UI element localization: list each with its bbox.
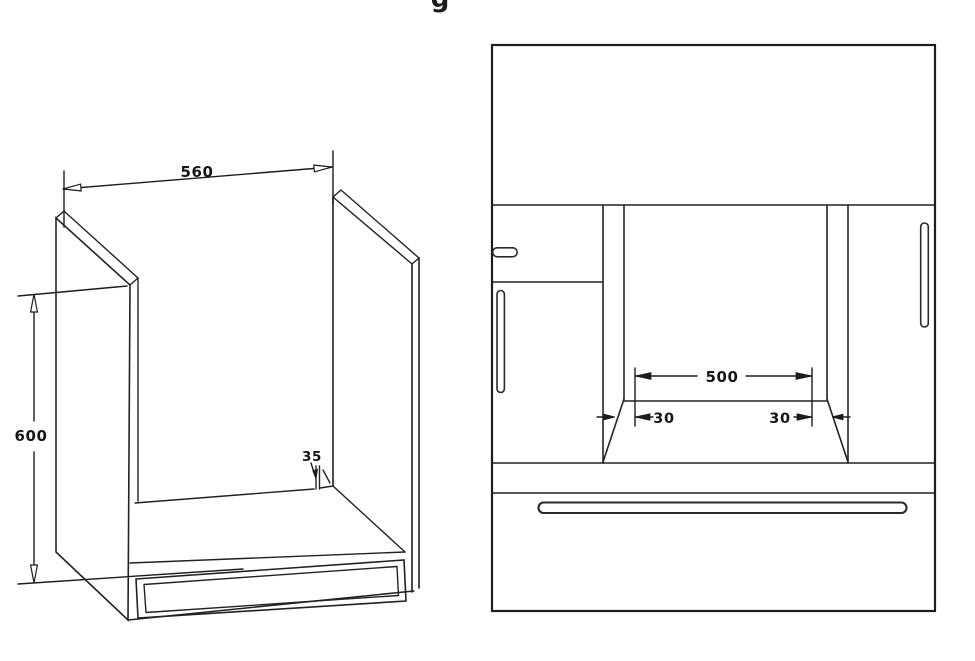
dim-560-label: 560 <box>180 163 213 181</box>
dim-600-label: 600 <box>14 427 47 445</box>
left-diagram-isometric-niche: 560 600 35 <box>14 151 419 620</box>
dim-30-left: 30 <box>597 411 675 427</box>
cabinet-bottom-edge <box>128 591 414 620</box>
left-side-panel-face <box>56 218 130 620</box>
dim-30-right-label: 30 <box>769 411 790 427</box>
back-ledge-step <box>316 466 330 489</box>
niche-floor-back-edge <box>135 489 314 503</box>
dim-35-label: 35 <box>302 449 322 465</box>
right-diagram-front-elevation: 500 30 30 <box>492 45 935 611</box>
bottom-drawer-handle <box>539 503 907 514</box>
technical-drawing-canvas: 560 600 35 <box>0 0 975 661</box>
dim-560: 560 <box>63 151 333 227</box>
dim-30-left-label: 30 <box>653 411 674 427</box>
niche-right-slant <box>827 399 848 462</box>
right-side-panel-top-face <box>333 190 419 264</box>
right-door-handle <box>921 223 929 327</box>
dim-500-label: 500 <box>705 368 738 386</box>
niche-floor-front-edge <box>130 552 405 563</box>
left-side-panel-top-face <box>56 211 138 285</box>
left-drawer-handle <box>493 248 518 257</box>
cabinet-front-outline <box>492 45 935 611</box>
niche-floor-right-edge <box>333 486 405 552</box>
niche-floor-back-edge-right <box>320 486 333 488</box>
dim-30-right: 30 <box>769 411 850 427</box>
niche-left-slant <box>603 399 624 462</box>
installation-drawing-page: g <box>0 0 975 661</box>
left-door-handle <box>497 291 504 393</box>
